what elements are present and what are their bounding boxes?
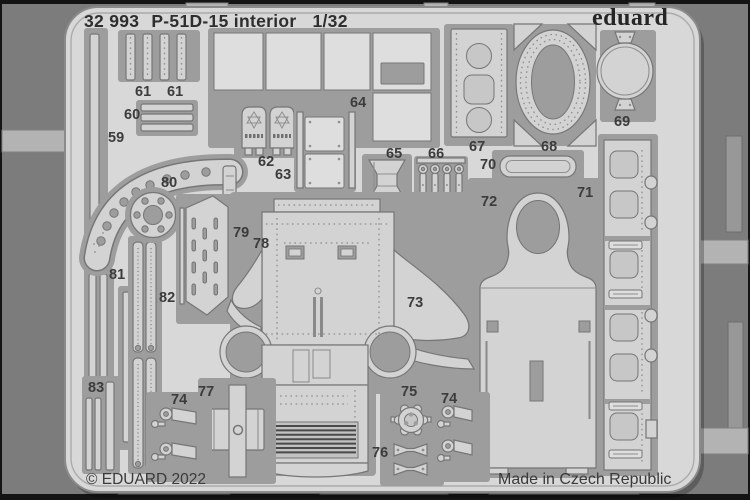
part-number-label: 76 [372,445,388,461]
part-number-label: 80 [161,175,177,191]
product-name: P-51D-15 interior [151,11,296,32]
part-number-label: 71 [577,185,593,201]
catalog-number: 32 993 [84,11,139,32]
scale-label: 1/32 [312,11,347,32]
part-number-label: 73 [407,295,423,311]
left-strips [84,268,114,386]
part-number-label: 75 [401,384,417,400]
part-number-label: 61 [167,84,183,100]
part-60-bars [136,100,198,136]
part-80-ring [125,187,181,243]
part-69-disc [597,30,656,122]
part-number-label: 69 [614,114,630,130]
background-strip [728,322,743,438]
part-75-76-cluster [380,392,444,486]
part-number-label: 62 [258,154,274,170]
part-number-label: 77 [198,384,214,400]
part-number-label: 66 [428,146,444,162]
part-number-label: 83 [88,380,104,396]
part-71-panel-column [598,134,658,476]
part-number-label: 72 [481,194,497,210]
part-number-label: 70 [480,157,496,173]
pe-fret-graphics [0,0,750,500]
part-68-oval-ring [514,24,596,146]
part-number-label: 63 [275,167,291,183]
origin-text: Made in Czech Republic [498,471,671,489]
part-number-label: 60 [124,107,140,123]
part-number-label: 78 [253,236,269,252]
eduard-logo: eduard [592,5,668,32]
part-number-label: 68 [541,139,557,155]
part-79-panel [176,194,238,324]
part-67-plate [444,24,514,146]
part-number-label: 74 [441,391,457,407]
part-number-label: 81 [109,267,125,283]
part-number-label: 74 [171,392,187,408]
part-number-label: 61 [135,84,151,100]
part-number-label: 82 [159,290,175,306]
part-62-buckles [234,102,300,158]
pe-fret-product-photo: 32 993 P-51D-15 interior 1/32 eduard © E… [0,0,750,500]
part-number-label: 79 [233,225,249,241]
copyright-text: © EDUARD 2022 [86,471,206,489]
part-number-label: 64 [350,95,366,111]
sheet-title: 32 993 P-51D-15 interior 1/32 [84,11,348,32]
part-number-label: 67 [469,139,485,155]
part-number-label: 59 [108,130,124,146]
background-strip [726,136,742,232]
part-63-panels [294,106,356,192]
part-61-strips [118,30,200,82]
part-number-label: 65 [386,146,402,162]
